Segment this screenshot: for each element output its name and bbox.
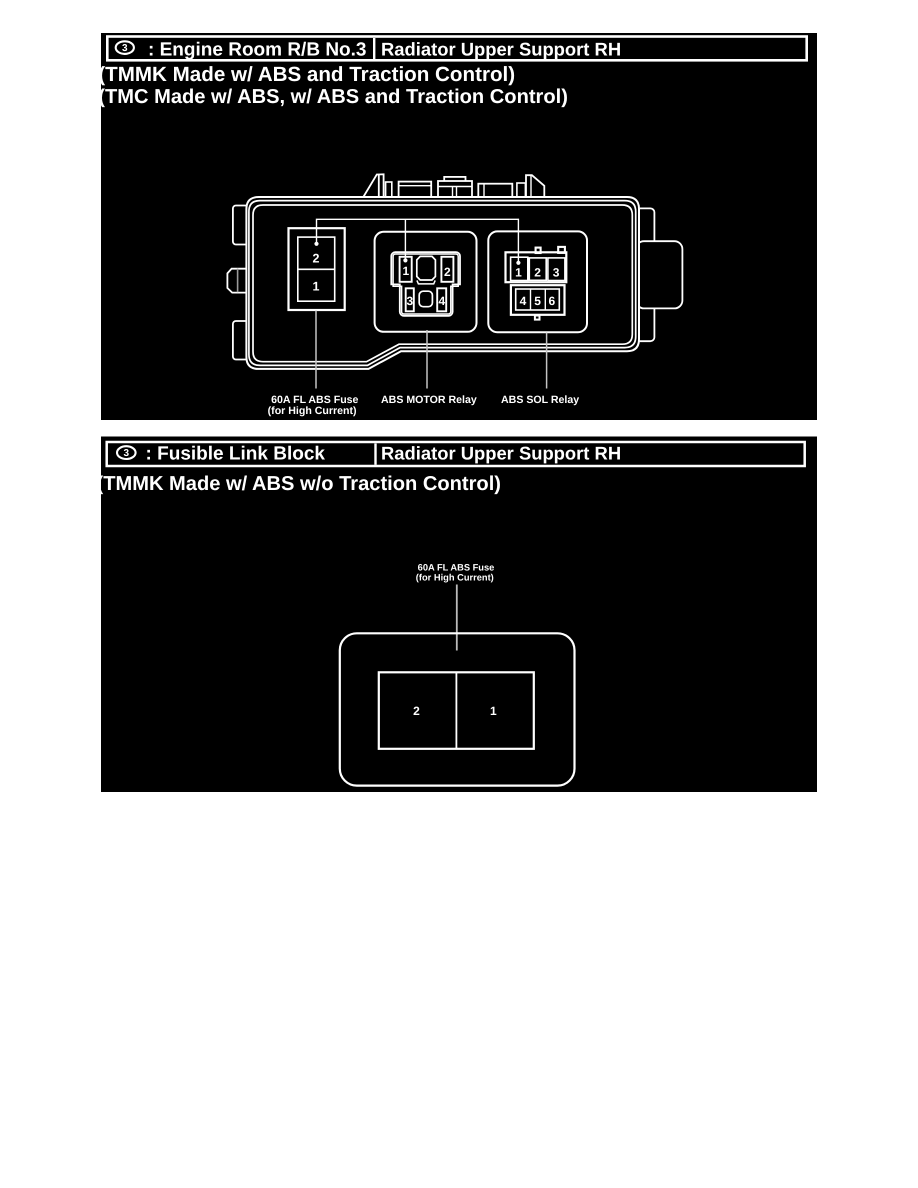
- svg-text:1: 1: [490, 704, 497, 718]
- svg-text:2: 2: [534, 266, 541, 280]
- svg-text:2: 2: [444, 265, 451, 279]
- svg-text:6: 6: [549, 294, 556, 308]
- svg-text:3: 3: [406, 294, 413, 308]
- svg-text:(for High Current): (for High Current): [268, 405, 357, 417]
- svg-text:60A FL ABS Fuse: 60A FL ABS Fuse: [418, 562, 495, 572]
- svg-text:3: 3: [124, 448, 130, 459]
- svg-text:1: 1: [515, 266, 522, 280]
- svg-text:(TMMK Made w/ ABS and Traction: (TMMK Made w/ ABS and Traction Control): [98, 63, 515, 86]
- svg-text:: Engine Room R/B No.3: : Engine Room R/B No.3: [148, 39, 367, 60]
- svg-text:4: 4: [520, 294, 527, 308]
- svg-text:2: 2: [413, 704, 420, 718]
- svg-text:1: 1: [402, 264, 409, 278]
- svg-text:3: 3: [122, 43, 128, 54]
- svg-text:(TMC Made w/ ABS, w/ ABS and T: (TMC Made w/ ABS, w/ ABS and Traction Co…: [98, 86, 568, 108]
- svg-text:Radiator Upper Support RH: Radiator Upper Support RH: [381, 443, 621, 464]
- svg-text:: Fusible Link Block: : Fusible Link Block: [146, 443, 326, 464]
- svg-text:(TMMK Made w/ ABS w/o Traction: (TMMK Made w/ ABS w/o Traction Control): [97, 473, 501, 495]
- svg-text:1: 1: [313, 279, 320, 293]
- svg-text:ABS SOL Relay: ABS SOL Relay: [501, 394, 579, 406]
- svg-text:Radiator Upper Support RH: Radiator Upper Support RH: [381, 38, 621, 59]
- svg-text:(for High Current): (for High Current): [416, 573, 494, 583]
- svg-text:2: 2: [313, 251, 320, 265]
- svg-text:ABS MOTOR Relay: ABS MOTOR Relay: [381, 394, 477, 406]
- svg-text:4: 4: [438, 294, 445, 308]
- svg-text:3: 3: [553, 266, 560, 280]
- svg-text:5: 5: [534, 294, 541, 308]
